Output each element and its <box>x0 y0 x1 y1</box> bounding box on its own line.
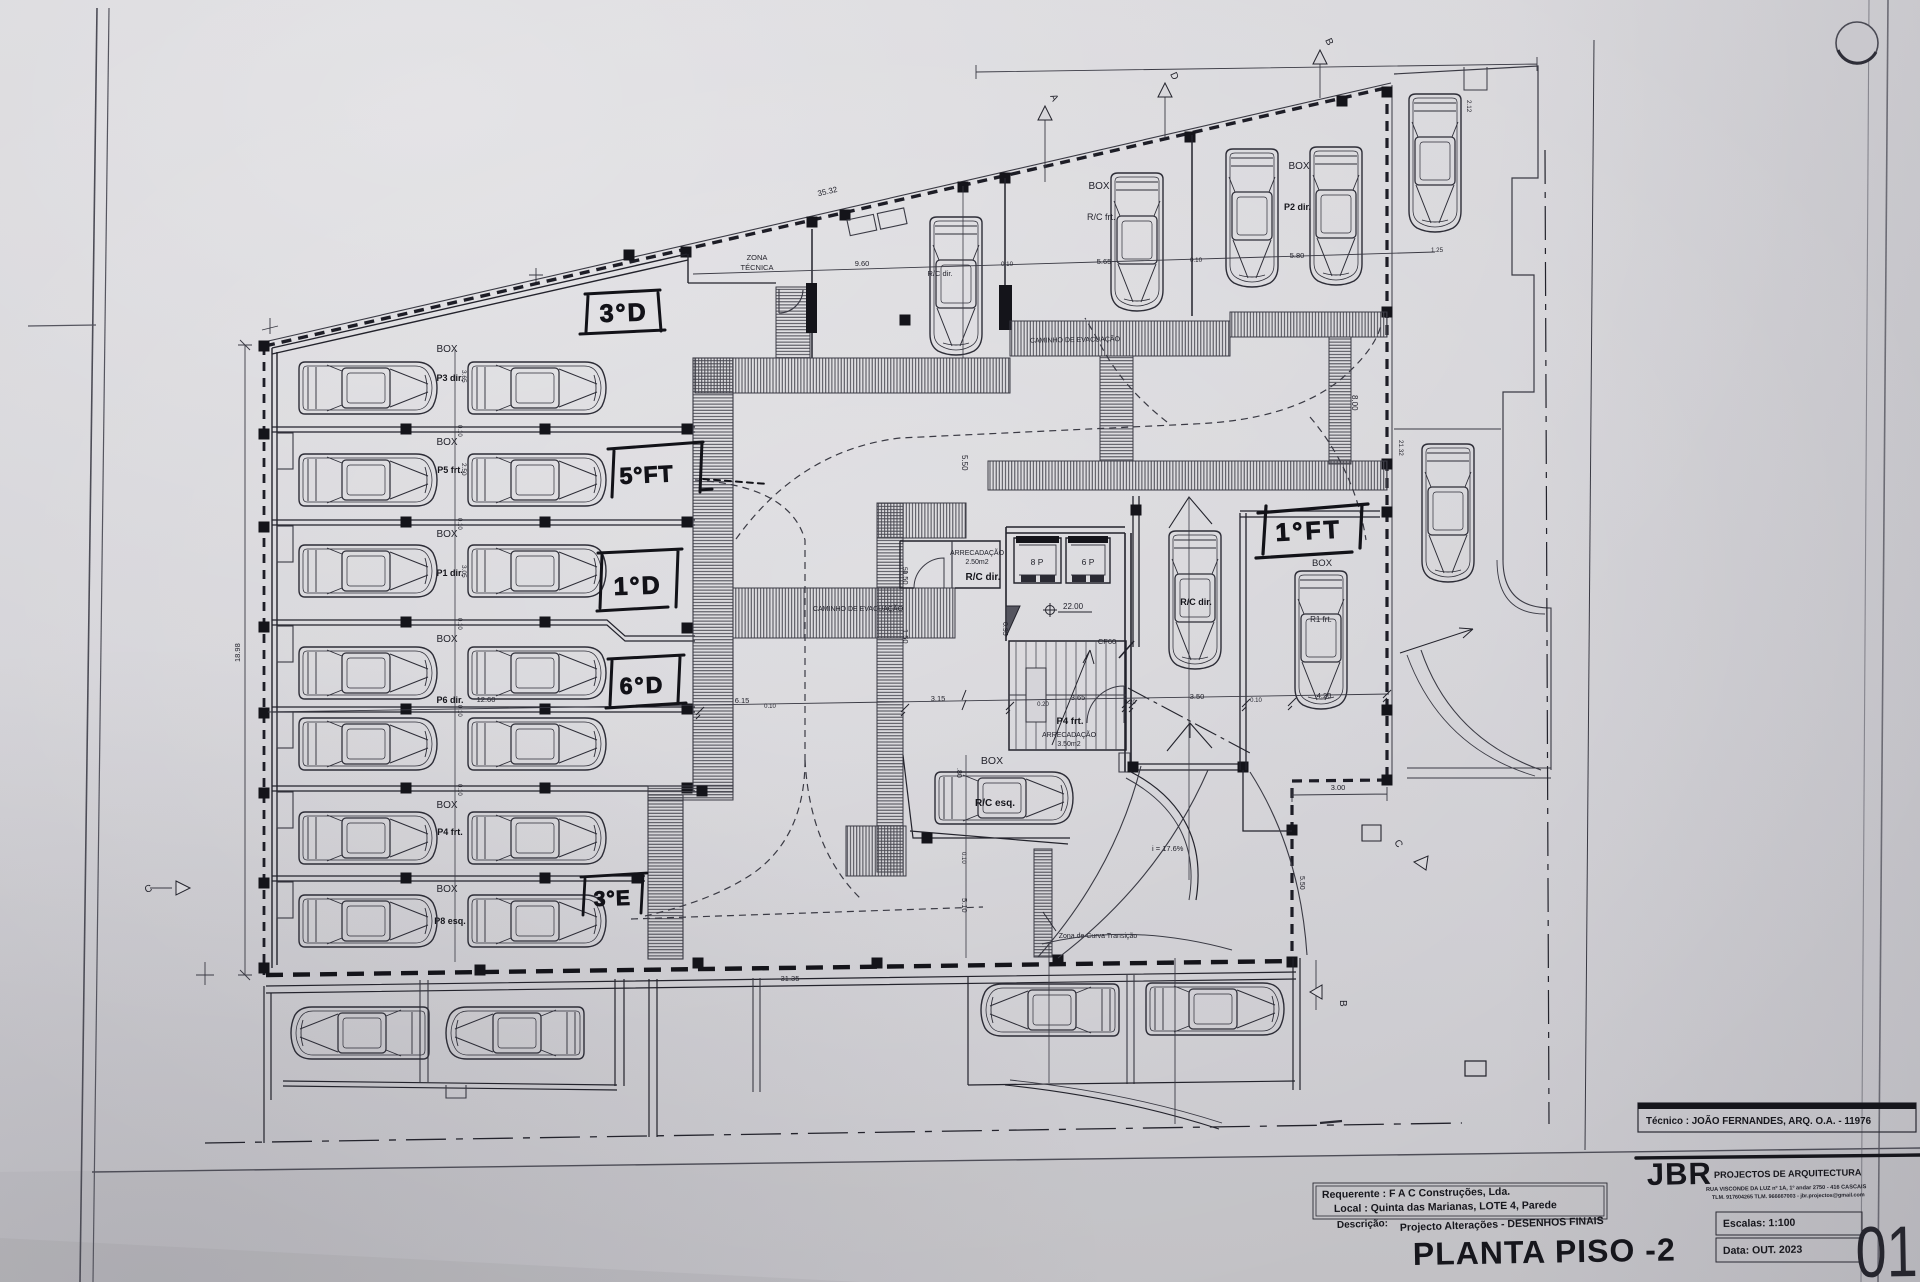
svg-text:0.95: 0.95 <box>1001 622 1008 636</box>
svg-text:21.32: 21.32 <box>1397 440 1404 456</box>
svg-text:8 P: 8 P <box>1031 557 1044 567</box>
svg-text:1.50: 1.50 <box>901 570 910 585</box>
svg-text:BOX: BOX <box>1312 558 1333 569</box>
svg-text:2.50m2: 2.50m2 <box>965 559 988 566</box>
svg-text:P4 frt.: P4 frt. <box>1057 716 1084 727</box>
svg-text:0.10: 0.10 <box>764 704 776 710</box>
svg-text:0.10: 0.10 <box>1250 698 1262 704</box>
svg-text:5.10: 5.10 <box>960 898 969 913</box>
svg-text:3.00: 3.00 <box>1331 783 1346 792</box>
svg-text:1°FT: 1°FT <box>1275 516 1343 547</box>
svg-text:.80: .80 <box>955 768 962 778</box>
svg-text:BOX: BOX <box>981 755 1003 767</box>
svg-text:R/C dir.: R/C dir. <box>965 572 1000 583</box>
svg-text:BOX: BOX <box>436 634 457 645</box>
svg-text:BOX: BOX <box>1288 161 1309 172</box>
svg-text:1.25: 1.25 <box>1431 247 1444 254</box>
svg-text:9.60: 9.60 <box>855 259 870 268</box>
svg-text:5.80: 5.80 <box>1290 251 1305 260</box>
svg-text:0.10: 0.10 <box>456 425 462 437</box>
svg-text:Técnico : JOÃO FERNANDES, ARQ.: Técnico : JOÃO FERNANDES, ARQ. O.A. - 11… <box>1646 1116 1872 1127</box>
svg-text:i = 17.6%: i = 17.6% <box>1152 844 1184 853</box>
svg-text:CAMINHO DE EVACUAÇÃO: CAMINHO DE EVACUAÇÃO <box>813 604 904 613</box>
svg-text:BOX: BOX <box>436 344 457 355</box>
svg-text:4.20: 4.20 <box>1317 691 1332 700</box>
svg-text:5.50: 5.50 <box>1298 876 1305 890</box>
svg-text:P8 esq.: P8 esq. <box>434 916 466 926</box>
svg-text:5°FT: 5°FT <box>619 460 674 489</box>
svg-text:R/C esq.: R/C esq. <box>975 798 1015 809</box>
svg-text:5.65: 5.65 <box>1097 257 1112 266</box>
svg-text:31.35: 31.35 <box>781 974 800 983</box>
svg-text:P1 dir.: P1 dir. <box>436 568 463 578</box>
svg-text:1.50: 1.50 <box>901 629 910 644</box>
svg-text:01: 01 <box>1855 1212 1918 1282</box>
svg-text:3.15: 3.15 <box>931 694 946 703</box>
svg-text:P6 dir.: P6 dir. <box>436 695 463 705</box>
svg-text:0.10: 0.10 <box>1190 257 1203 264</box>
svg-text:BOX: BOX <box>1088 181 1109 192</box>
svg-text:JBR: JBR <box>1647 1156 1713 1192</box>
svg-text:6°D: 6°D <box>619 671 664 699</box>
svg-text:0.10: 0.10 <box>960 852 966 864</box>
svg-text:P3 dir.: P3 dir. <box>436 373 463 383</box>
svg-text:0.10: 0.10 <box>1001 261 1014 268</box>
svg-text:R/C frt.: R/C frt. <box>1087 212 1116 222</box>
svg-text:8.00: 8.00 <box>1350 395 1359 411</box>
svg-text:5.50: 5.50 <box>960 455 969 471</box>
svg-text:Escalas: 1:100: Escalas: 1:100 <box>1723 1217 1796 1230</box>
svg-text:0.10: 0.10 <box>456 618 462 630</box>
svg-text:TÉCNICA: TÉCNICA <box>741 263 774 272</box>
svg-text:18.98: 18.98 <box>233 643 242 662</box>
svg-text:3.05: 3.05 <box>460 565 467 578</box>
svg-text:BOX: BOX <box>436 437 457 448</box>
svg-text:2.12: 2.12 <box>1465 100 1472 113</box>
svg-text:3.65: 3.65 <box>1071 693 1086 702</box>
svg-text:3.50m2: 3.50m2 <box>1057 741 1080 748</box>
svg-text:ARRECADAÇÃO: ARRECADAÇÃO <box>950 548 1005 557</box>
svg-text:0.10: 0.10 <box>456 705 462 717</box>
svg-text:Data: OUT. 2023: Data: OUT. 2023 <box>1723 1244 1803 1257</box>
svg-text:ARRECADAÇÃO: ARRECADAÇÃO <box>1042 730 1097 739</box>
svg-text:2.50: 2.50 <box>460 463 467 476</box>
svg-text:R/C dir.: R/C dir. <box>927 269 952 278</box>
svg-text:P4 frt.: P4 frt. <box>437 827 463 837</box>
svg-text:P5 frt.: P5 frt. <box>437 465 463 475</box>
svg-text:0.20: 0.20 <box>1037 702 1049 708</box>
svg-text:PLANTA PISO -2: PLANTA PISO -2 <box>1412 1231 1675 1272</box>
svg-text:0.10: 0.10 <box>456 518 462 530</box>
svg-text:1°D: 1°D <box>613 571 662 601</box>
svg-text:BOX: BOX <box>436 800 457 811</box>
svg-text:22.00: 22.00 <box>1063 602 1084 611</box>
svg-text:P2 dir.: P2 dir. <box>1284 202 1311 212</box>
svg-text:R1 frt.: R1 frt. <box>1310 615 1332 624</box>
svg-text:3°E: 3°E <box>593 887 631 911</box>
svg-text:ZONA: ZONA <box>747 253 768 262</box>
svg-text:Descrição:: Descrição: <box>1337 1218 1388 1231</box>
svg-text:3.65: 3.65 <box>460 370 467 383</box>
svg-text:BOX: BOX <box>436 529 457 540</box>
svg-text:B: B <box>1337 1000 1348 1007</box>
svg-text:3°D: 3°D <box>599 298 648 328</box>
svg-text:6 P: 6 P <box>1082 557 1095 567</box>
svg-text:3.50: 3.50 <box>1190 692 1205 701</box>
svg-text:CF60: CF60 <box>1098 637 1116 646</box>
svg-text:0.10: 0.10 <box>456 784 462 796</box>
svg-text:6.15: 6.15 <box>735 696 750 705</box>
svg-text:R/C dir.: R/C dir. <box>1180 597 1212 607</box>
svg-text:BOX: BOX <box>436 884 457 895</box>
